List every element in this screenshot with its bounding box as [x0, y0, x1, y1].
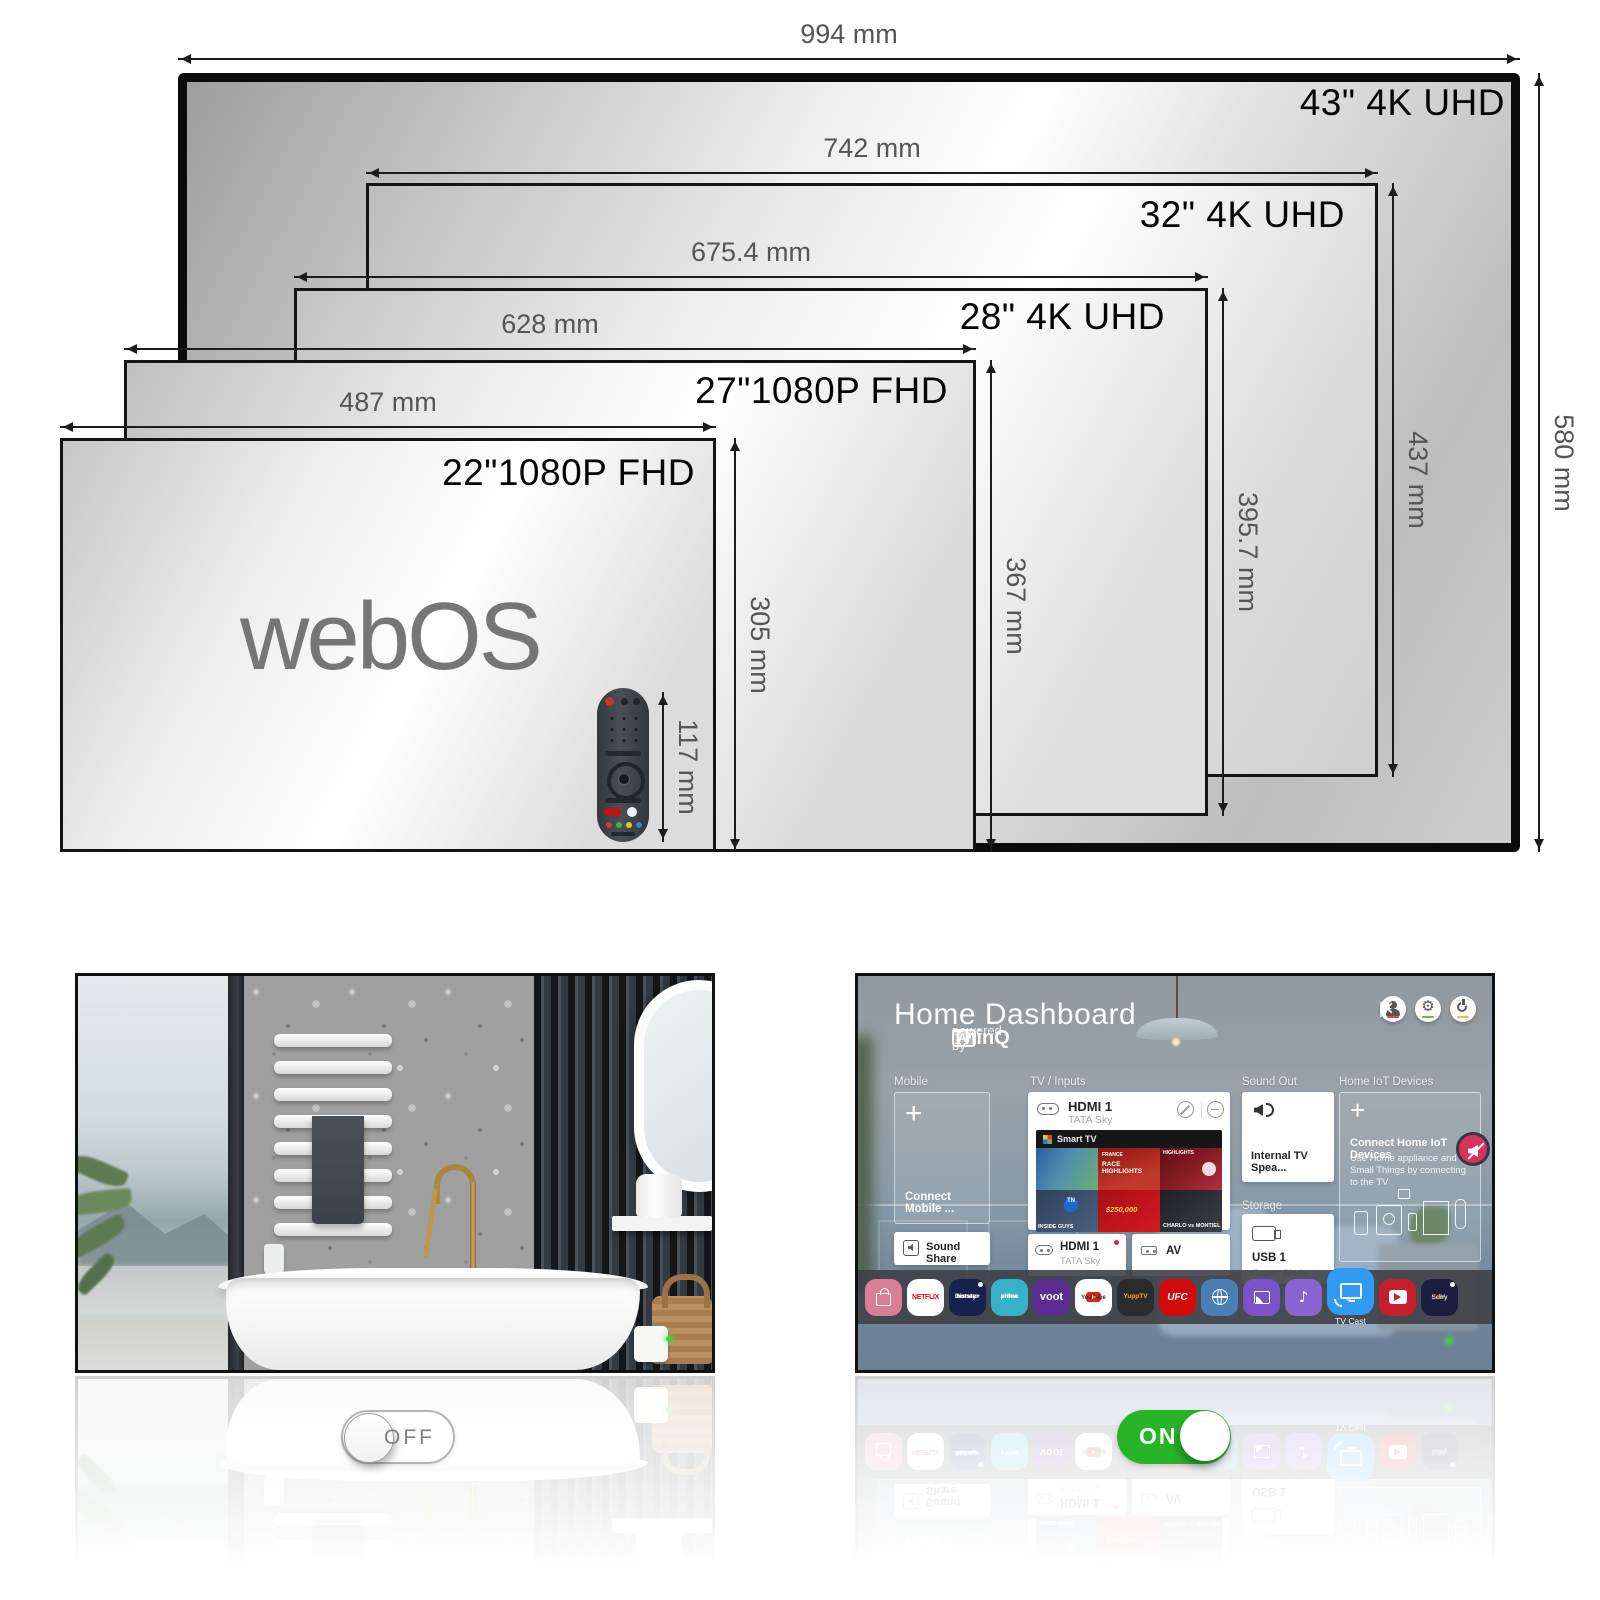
off-label: OFF [384, 1426, 435, 1450]
plus-icon: + [1350, 1097, 1365, 1123]
dim-label: 395.7 mm [1232, 492, 1263, 612]
yupptv-label: YuppTV [1123, 1293, 1147, 1300]
container [636, 1174, 682, 1218]
voot-label: voot [1040, 1291, 1063, 1303]
dashboard-title: Home Dashboard [894, 998, 1136, 1032]
app-tv-cast[interactable] [1327, 1268, 1374, 1315]
tile-text: INSIDE GUYS [1038, 1224, 1073, 1230]
remote-netflix-button [604, 808, 621, 816]
remote-button-bar [605, 798, 641, 803]
magic-remote [597, 688, 649, 842]
shelf [612, 1216, 712, 1231]
signal-dot [1114, 1240, 1119, 1245]
app-prime-video[interactable]: prime video [991, 1279, 1028, 1316]
dim-height-27: 367 mm [990, 360, 992, 852]
close-icon[interactable]: × [1380, 997, 1394, 1021]
sony-liv-label: LIV [1434, 1294, 1445, 1301]
dim-height-28: 395.7 mm [1222, 288, 1224, 816]
dim-width-27: 628 mm [124, 348, 976, 350]
sound-out-card[interactable]: Internal TV Spea... [1242, 1092, 1334, 1182]
on-label: ON [1139, 1423, 1178, 1450]
app-ufc[interactable]: UFC [1159, 1279, 1196, 1316]
smart-tv-logo [1043, 1135, 1052, 1144]
tv-on-photo: Home Dashboard powered by ThinQ AI ⚙ × M… [855, 973, 1495, 1373]
sound-share-icon [903, 1240, 919, 1256]
app-voot[interactable]: voot [1033, 1279, 1070, 1316]
connect-mobile-card[interactable]: + Connect Mobile ... [894, 1092, 990, 1224]
tile-text: CHARLO vs MONTIEL [1163, 1223, 1220, 1229]
white-towel [634, 1326, 668, 1362]
smart-tv-label: Smart TV [1057, 1134, 1097, 1144]
dark-towel [312, 1116, 364, 1224]
remote-number-keys [604, 711, 642, 749]
iot-phone-icon [1408, 1213, 1417, 1231]
globe-icon [1212, 1289, 1228, 1305]
app-shemaroo[interactable] [1379, 1279, 1416, 1316]
app-sony-liv[interactable]: Sony LIV [1421, 1279, 1458, 1316]
section-mobile: Mobile [894, 1076, 928, 1088]
hdmi1-small-title: HDMI 1 [1060, 1241, 1099, 1253]
section-sound-out: Sound Out [1242, 1076, 1297, 1088]
photo-icon [1254, 1291, 1270, 1304]
dim-label: 675.4 mm [691, 237, 811, 268]
screen-label-27: 27"1080P FHD [695, 370, 948, 412]
dim-width-28: 675.4 mm [294, 276, 1208, 278]
app-youtube[interactable]: YouTube [1075, 1279, 1112, 1316]
usb-icon [1252, 1226, 1276, 1241]
tv-on-toggle[interactable]: ON [1117, 1410, 1231, 1464]
dim-height-remote: 117 mm [662, 692, 664, 842]
store-bag-icon [876, 1293, 891, 1306]
tile-text: FRANCE [1102, 1153, 1123, 1159]
remote-button-bar [611, 832, 635, 836]
sound-out-label: Internal TV Spea... [1251, 1150, 1334, 1174]
speaker-icon [1254, 1104, 1263, 1116]
screen-label-22: 22"1080P FHD [442, 452, 695, 494]
hotstar-label2: hotstar [956, 1293, 978, 1300]
bathtub [226, 1278, 640, 1370]
iot-tv-icon [1398, 1189, 1410, 1199]
iot-desc: Use Home appliance and Small Things by c… [1350, 1153, 1472, 1189]
home-iot-panel[interactable]: + Connect Home IoT Devices Use Home appl… [1339, 1092, 1481, 1262]
app-netflix[interactable]: NETFLIX [907, 1279, 944, 1316]
settings-button[interactable]: ⚙ [1415, 996, 1441, 1022]
app-dock: NETFLIX Disney+ hotstar prime video voot… [858, 1270, 1492, 1324]
section-storage: Storage [1242, 1200, 1282, 1212]
av-label: AV [1166, 1245, 1181, 1257]
sound-share-button[interactable]: Sound Share [894, 1232, 990, 1265]
app-disney-hotstar[interactable]: Disney+ hotstar [949, 1279, 986, 1316]
shemaroo-icon [1389, 1290, 1407, 1304]
prime-label2: video [1001, 1293, 1018, 1300]
iot-oven-icon [1423, 1201, 1449, 1235]
tn-logo: TN [1064, 1198, 1078, 1212]
lamp-cord [1176, 976, 1178, 1022]
power-led [666, 1336, 672, 1342]
dim-width-32: 742 mm [366, 172, 1378, 174]
connect-mobile-label: Connect Mobile ... [905, 1191, 989, 1215]
dim-label: 305 mm [744, 596, 775, 694]
hdmi1-small-subtitle: TATA Sky [1060, 1256, 1100, 1267]
iot-washer-drum [1383, 1213, 1395, 1225]
ufc-label: UFC [1167, 1292, 1188, 1303]
remove-icon[interactable] [1207, 1101, 1224, 1118]
remote-button [633, 698, 640, 705]
tv-cast-label: TV Cast [1335, 1316, 1366, 1326]
screen-label-28: 28" 4K UHD [960, 296, 1165, 338]
dim-width-22: 487 mm [60, 426, 716, 428]
remote-prime-button [627, 807, 637, 817]
dim-height-22: 305 mm [734, 438, 736, 852]
preview-tile: HIGHLIGHTS [1160, 1148, 1222, 1190]
app-gallery[interactable] [1243, 1279, 1280, 1316]
power-icon [1457, 1002, 1467, 1012]
power-led [1446, 1338, 1452, 1344]
wall-outlet [264, 1244, 284, 1274]
preview-tile: TN INSIDE GUYS [1036, 1190, 1098, 1232]
round-mirror [634, 980, 715, 1192]
preview-tile: FRANCE RACE HIGHLIGHTS [1098, 1148, 1160, 1190]
dim-label: 437 mm [1402, 431, 1433, 529]
netflix-label: NETFLIX [912, 1294, 939, 1301]
dim-label: 994 mm [800, 19, 898, 50]
preview-tile: $250,000 [1098, 1190, 1160, 1232]
dim-label: 117 mm [672, 719, 703, 815]
remote-power-button [605, 697, 614, 706]
preview-tile: CHARLO vs MONTIEL [1160, 1190, 1222, 1232]
webos-logo: webOS [240, 582, 540, 692]
dim-height-43: 580 mm [1538, 73, 1540, 852]
remote-scroll-wheel [618, 773, 630, 785]
disconnect-icon[interactable] [1177, 1101, 1194, 1118]
remote-color-buttons [606, 822, 612, 828]
dashboard-top-icons: ⚙ × [1380, 996, 1476, 1022]
app-web-browser[interactable] [1201, 1279, 1238, 1316]
dim-label: 628 mm [501, 309, 599, 340]
app-yupptv[interactable]: YuppTV [1117, 1279, 1154, 1316]
iot-remote-icon [1455, 1199, 1466, 1229]
remote-button [621, 698, 628, 705]
mirror-off-toggle[interactable]: OFF [341, 1410, 455, 1464]
cast-wave-icon [1334, 1299, 1342, 1307]
dim-label: 487 mm [339, 387, 437, 418]
tile-text: HIGHLIGHTS [1163, 1151, 1194, 1157]
usb-title: USB 1 [1252, 1252, 1286, 1264]
section-home-iot: Home IoT Devices [1339, 1076, 1433, 1088]
hdmi1-input-card[interactable]: HDMI 1 TATA Sky Smart TV FRANCE RACE HIG… [1028, 1092, 1230, 1230]
hdmi-plug-icon [1037, 1103, 1059, 1115]
music-note-icon: ♪ [1299, 1288, 1309, 1306]
mute-button[interactable] [1456, 1132, 1490, 1166]
section-tv-inputs: TV / Inputs [1030, 1076, 1086, 1088]
dim-label: 742 mm [823, 133, 921, 164]
remote-button-bar [605, 751, 641, 756]
tile-text: $250,000 [1106, 1206, 1137, 1214]
dim-width-43: 994 mm [178, 58, 1520, 60]
tv-cast-icon [1340, 1283, 1362, 1299]
preview-tile [1036, 1148, 1098, 1190]
tile-text: RACE HIGHLIGHTS [1102, 1161, 1152, 1175]
divider [1201, 1102, 1202, 1118]
app-music[interactable]: ♪ [1285, 1279, 1322, 1316]
hdmi1-preview: Smart TV FRANCE RACE HIGHLIGHTS HIGHLIGH… [1036, 1130, 1222, 1232]
product-graphic: webOS 994 mm 742 mm 675.4 mm 628 mm 487 [0, 0, 1600, 1600]
screen-label-43: 43" 4K UHD [1300, 82, 1505, 124]
youtube-label: YouTube [1081, 1295, 1106, 1301]
hdmi-plug-icon [1035, 1245, 1053, 1255]
av-plug-icon [1141, 1246, 1157, 1255]
screen-label-32: 32" 4K UHD [1140, 194, 1345, 236]
speaker-wave-icon [1266, 1103, 1274, 1117]
dim-label: 367 mm [1000, 557, 1031, 655]
plant-blur [855, 1036, 872, 1286]
hdmi1-title: HDMI 1 [1068, 1099, 1112, 1114]
dim-label: 580 mm [1548, 414, 1579, 512]
hdmi1-subtitle: TATA Sky [1068, 1114, 1112, 1126]
toggle-knob[interactable] [1180, 1411, 1230, 1461]
gear-icon: ⚙ [1415, 997, 1441, 1015]
ai-badge: AI [952, 1029, 976, 1047]
iot-speaker-icon [1354, 1211, 1368, 1235]
plus-icon: + [905, 1099, 923, 1129]
power-button[interactable] [1450, 996, 1476, 1022]
app-lg-content-store[interactable] [865, 1279, 902, 1316]
sound-share-label: Sound Share [926, 1241, 990, 1265]
dim-height-32: 437 mm [1392, 183, 1394, 777]
tile-dot [1202, 1162, 1216, 1176]
app-tv-cast-wrap: TV Cast [1327, 1280, 1374, 1315]
mirror-off-photo [75, 973, 715, 1373]
